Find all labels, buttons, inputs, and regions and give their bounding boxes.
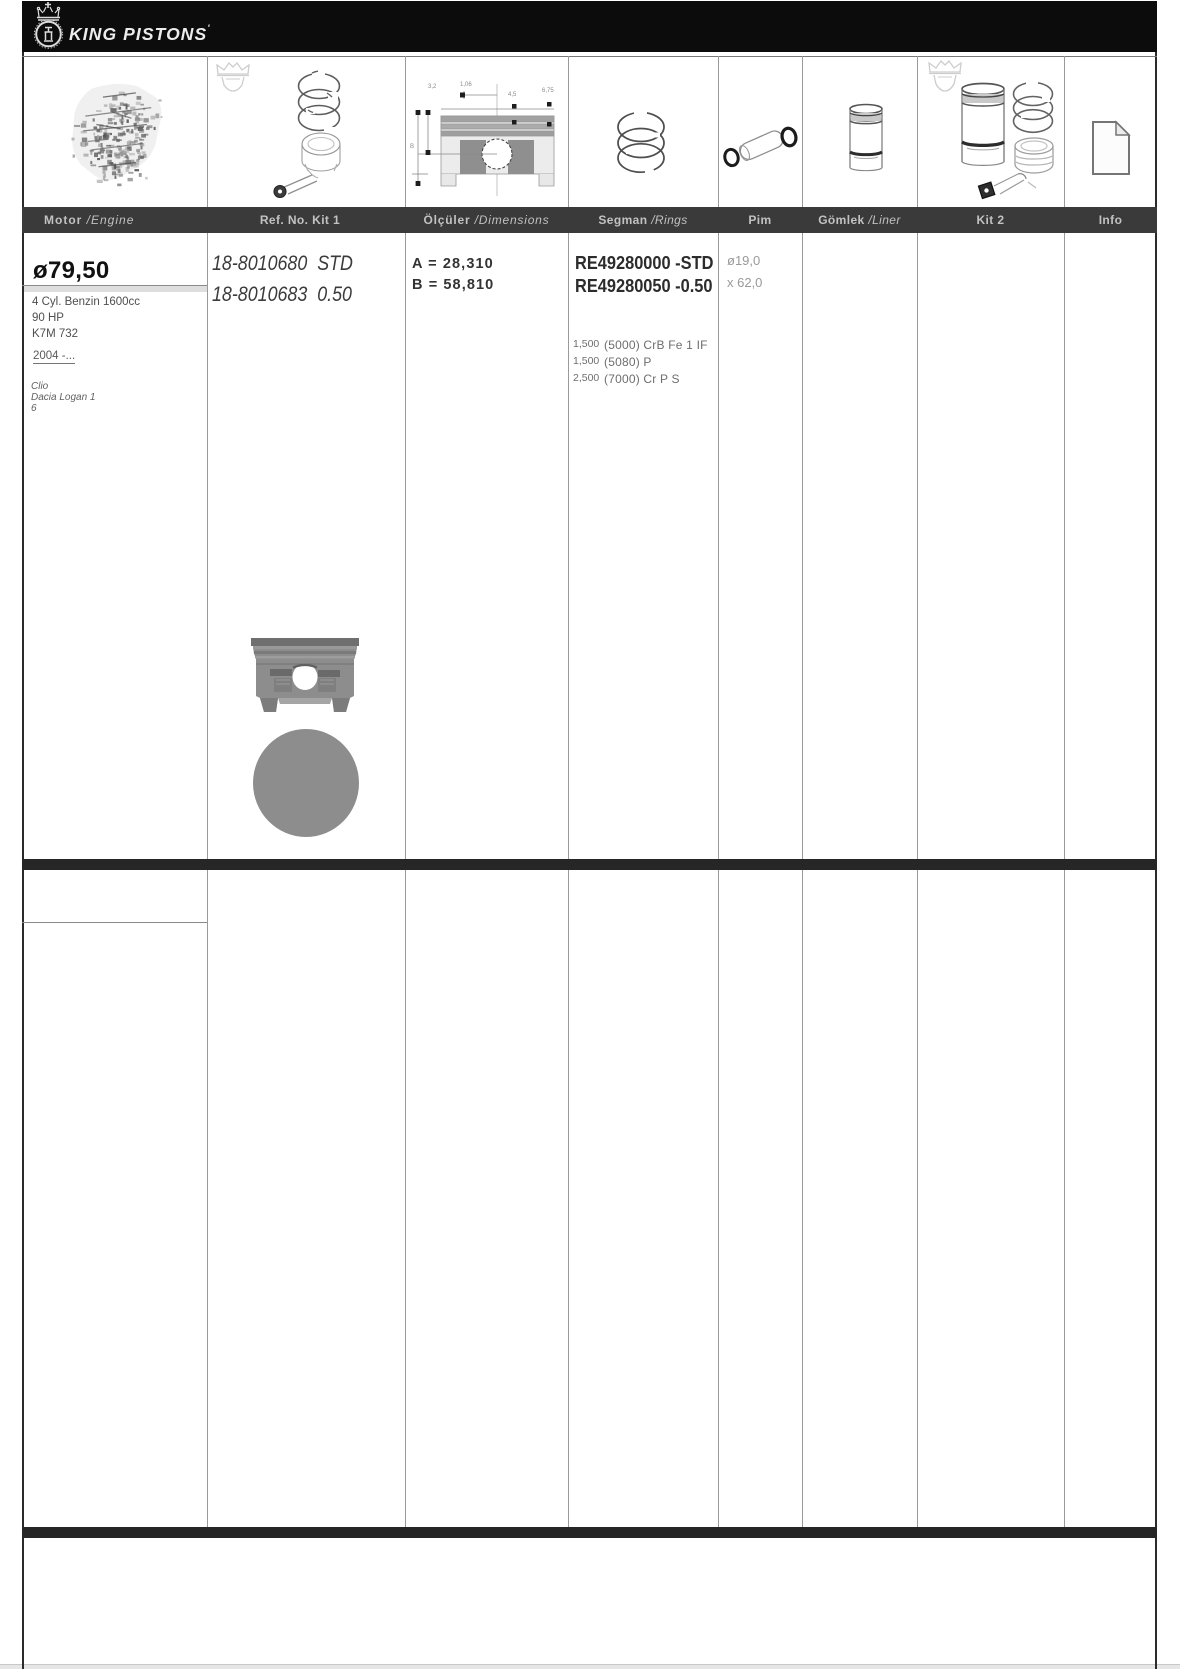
svg-text:4,5: 4,5: [508, 92, 517, 98]
svg-text:B: B: [410, 144, 414, 150]
svg-text:3,2: 3,2: [428, 84, 437, 90]
svg-text:1,06: 1,06: [460, 82, 472, 88]
svg-text:6,75: 6,75: [542, 88, 554, 94]
